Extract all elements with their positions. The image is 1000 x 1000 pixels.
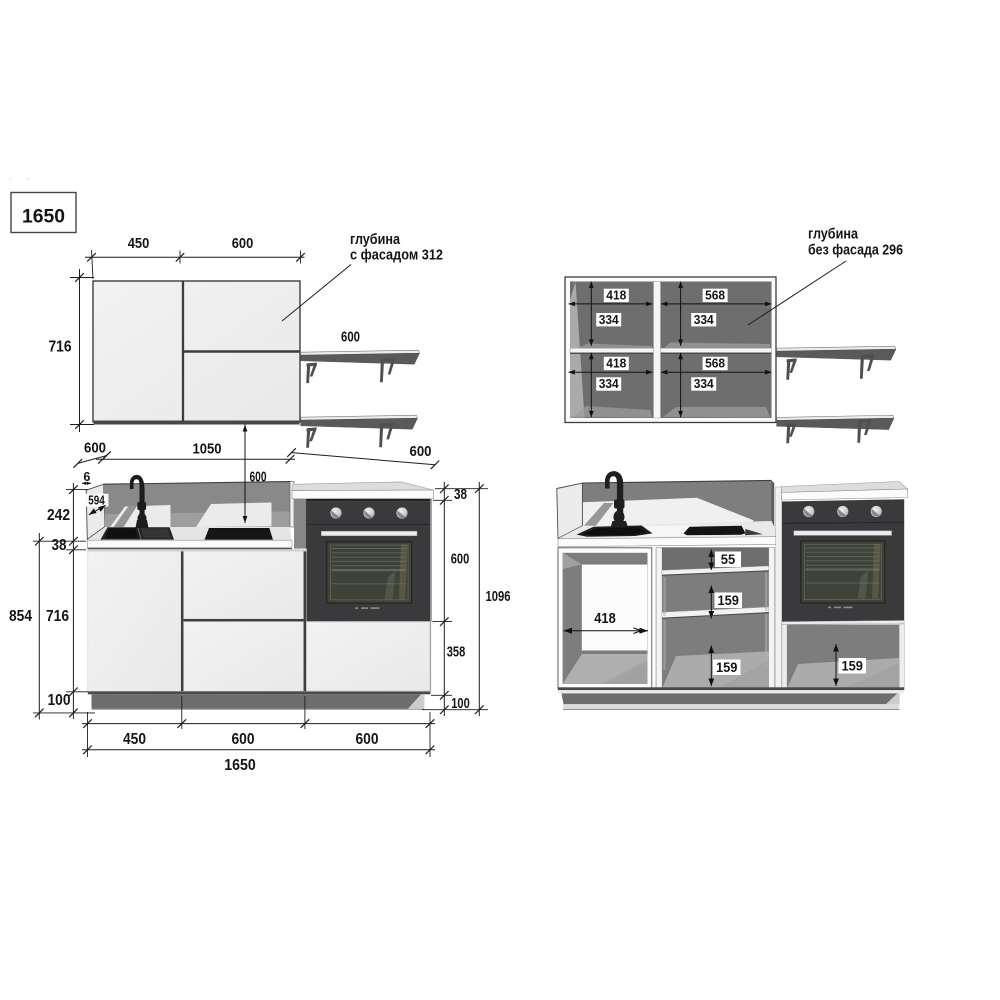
svg-text:334: 334 — [694, 376, 715, 391]
svg-text:600: 600 — [232, 731, 255, 748]
svg-text:568: 568 — [705, 288, 725, 303]
svg-text:600: 600 — [356, 731, 379, 748]
svg-text:глубина: глубина — [808, 226, 859, 243]
svg-text:600: 600 — [451, 551, 470, 568]
svg-text:568: 568 — [705, 356, 725, 371]
svg-text:450: 450 — [128, 236, 150, 252]
svg-text:55: 55 — [721, 551, 736, 567]
svg-text:1650: 1650 — [224, 757, 256, 774]
svg-text:1096: 1096 — [486, 588, 511, 605]
svg-text:418: 418 — [594, 610, 616, 627]
svg-text:100: 100 — [48, 692, 71, 709]
svg-text:100: 100 — [451, 695, 470, 712]
svg-text:глубина: глубина — [350, 231, 401, 248]
svg-text:358: 358 — [447, 644, 466, 661]
svg-text:38: 38 — [454, 486, 467, 503]
svg-text:600: 600 — [341, 329, 360, 346]
svg-text:с фасадом 312: с фасадом 312 — [350, 247, 443, 264]
svg-text:159: 159 — [717, 592, 739, 608]
svg-text:1050: 1050 — [193, 441, 222, 458]
svg-text:418: 418 — [606, 288, 626, 303]
svg-text:38: 38 — [52, 537, 67, 554]
svg-text:716: 716 — [46, 608, 69, 625]
svg-text:без фасада 296: без фасада 296 — [808, 242, 903, 259]
svg-text:600: 600 — [410, 443, 432, 460]
svg-text:159: 159 — [841, 658, 863, 674]
svg-text:242: 242 — [47, 507, 70, 524]
svg-text:594: 594 — [88, 492, 105, 507]
svg-text:334: 334 — [694, 312, 715, 327]
svg-text:600: 600 — [232, 236, 254, 252]
svg-text:334: 334 — [599, 312, 620, 327]
svg-text:418: 418 — [606, 356, 626, 371]
svg-text:334: 334 — [599, 376, 620, 391]
svg-text:854: 854 — [9, 608, 32, 625]
svg-text:450: 450 — [123, 731, 146, 748]
svg-text:600: 600 — [250, 469, 267, 486]
svg-text:600: 600 — [84, 440, 106, 457]
svg-text:159: 159 — [716, 659, 738, 675]
svg-text:1650: 1650 — [22, 206, 65, 228]
svg-text:716: 716 — [49, 339, 72, 356]
